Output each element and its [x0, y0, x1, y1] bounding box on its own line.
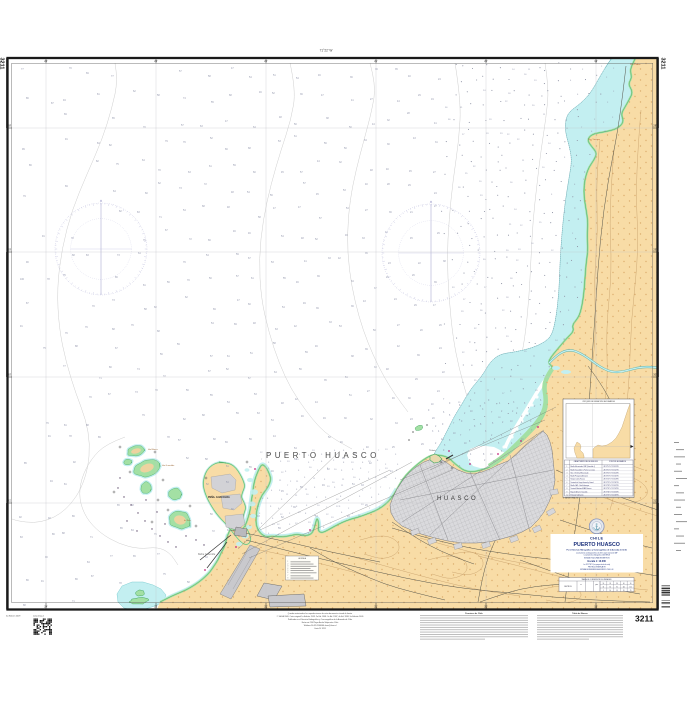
svg-text:Terminal de Carga General y Gr: Terminal de Carga General y Granel — [571, 482, 595, 484]
svg-text:100: 100 — [20, 278, 25, 281]
svg-text:LEYENDA: LEYENDA — [298, 557, 307, 560]
svg-text:24': 24' — [44, 605, 48, 609]
svg-text:pies: pies — [595, 584, 598, 586]
svg-text:Tabla de Mareas: Tabla de Mareas — [572, 613, 588, 615]
svg-text:Derrotero de Chile: Derrotero de Chile — [465, 612, 483, 615]
svg-text:3211: 3211 — [635, 614, 654, 624]
svg-text:5a Edición 2009: 5a Edición 2009 — [6, 616, 21, 618]
svg-text:28°27'19"S 71°11'26"W: 28°27'19"S 71°11'26"W — [604, 476, 620, 478]
svg-text:28°27'10"S 71°10'20"W: 28°27'10"S 71°10'20"W — [604, 466, 620, 468]
svg-text:PUERTO HUASCO: PUERTO HUASCO — [266, 451, 380, 460]
svg-text:28°27'16"S 71°10'24"W: 28°27'16"S 71°10'24"W — [604, 472, 620, 474]
svg-text:Escala 1: 10.000: Escala 1: 10.000 — [588, 560, 607, 563]
svg-text:32: 32 — [603, 586, 605, 588]
svg-text:Pta. Lobos: Pta. Lobos — [630, 63, 641, 66]
svg-text:24': 24' — [44, 59, 48, 63]
svg-text:Caleta: Caleta — [430, 449, 437, 452]
svg-text:Carta N° 3211: Carta N° 3211 — [314, 627, 326, 630]
svg-text:Muelle Mecanizado CMP (Guacold: Muelle Mecanizado CMP (Guacolda I) — [571, 466, 596, 468]
svg-text:Pta. Vinagre: Pta. Vinagre — [588, 138, 601, 141]
svg-text:⚓: ⚓ — [593, 523, 601, 531]
svg-text:30': 30' — [8, 373, 12, 377]
svg-text:22': 22' — [264, 59, 268, 63]
svg-text:20': 20' — [484, 605, 488, 609]
svg-text:19': 19' — [594, 59, 598, 63]
svg-text:HUASCO: HUASCO — [437, 496, 478, 502]
svg-text:21': 21' — [374, 605, 378, 609]
svg-text:Publicada en el Servicio Hidro: Publicada en el Servicio Hidrográfico y … — [288, 618, 352, 621]
svg-text:Emisario Submarino: Emisario Submarino — [571, 494, 584, 496]
svg-text:10: 10 — [603, 583, 605, 585]
svg-text:152: 152 — [630, 586, 632, 588]
svg-text:28°27'31"S 71°11'34"W: 28°27'31"S 71°11'34"W — [604, 488, 620, 490]
svg-text:10: 10 — [567, 494, 569, 496]
svg-text:28°27'28"S 71°10'32"W: 28°27'28"S 71°10'32"W — [604, 485, 620, 487]
svg-text:28°27'25"S 71°11'30"W: 28°27'25"S 71°11'30"W — [604, 482, 620, 484]
svg-text:Quedan autorizadas las reprodu: Quedan autorizadas las reproducciones de… — [288, 612, 352, 615]
svg-text:28°27'22"S 71°10'28"W: 28°27'22"S 71°10'28"W — [604, 479, 620, 481]
svg-text:www.shoa.cl: www.shoa.cl — [33, 616, 45, 618]
svg-text:Errázuriz 254 Playa Ancha Valp: Errázuriz 254 Playa Ancha Valparaíso Chi… — [302, 621, 339, 624]
svg-text:28': 28' — [8, 124, 12, 128]
svg-text:28°27'13"S 71°11'22"W: 28°27'13"S 71°11'22"W — [604, 469, 620, 471]
svg-text:31': 31' — [653, 499, 657, 503]
svg-text:22': 22' — [264, 605, 268, 609]
svg-text:71°22' W: 71°22' W — [320, 49, 333, 53]
svg-text:Isla Blanca: Isla Blanca — [148, 449, 159, 451]
svg-text:30': 30' — [653, 373, 657, 377]
svg-text:Teléfono 56-32-2266666 shoa@sh: Teléfono 56-32-2266666 shoa@shoa.cl — [303, 625, 337, 627]
svg-text:Bahía Guacolda: Bahía Guacolda — [198, 553, 216, 556]
svg-text:21': 21' — [374, 59, 378, 63]
svg-text:PUERTO HUASCO: PUERTO HUASCO — [573, 542, 619, 548]
svg-text:METROS: METROS — [564, 586, 572, 588]
svg-text:CROQUIS DE UBICACION GEOGRAFIC: CROQUIS DE UBICACION GEOGRAFICA — [582, 400, 615, 403]
svg-text:23': 23' — [154, 59, 158, 63]
svg-text:3211: 3211 — [0, 58, 5, 70]
svg-text:Ia. Rica: Ia. Rica — [184, 520, 192, 522]
svg-text:62: 62 — [609, 586, 611, 588]
svg-text:31': 31' — [8, 499, 12, 503]
svg-text:29': 29' — [8, 248, 12, 252]
svg-text:3211: 3211 — [659, 58, 665, 70]
svg-text:28°27'37"S 71°11'38"W: 28°27'37"S 71°11'38"W — [604, 494, 620, 496]
svg-text:28°27'34"S 71°10'36"W: 28°27'34"S 71°10'36"W — [604, 491, 620, 493]
svg-text:23': 23' — [154, 605, 158, 609]
svg-text:CHILE: CHILE — [590, 536, 603, 540]
svg-text:© SHOA 2009. Carta original 1a: © SHOA 2009. Carta original 1a Edición 1… — [277, 615, 364, 618]
svg-text:10: 10 — [609, 590, 611, 592]
svg-text:29': 29' — [653, 248, 657, 252]
svg-text:Por el Servicio Hidrográfico y: Por el Servicio Hidrográfico y Oceanográ… — [566, 548, 626, 551]
svg-text:19': 19' — [594, 605, 598, 609]
svg-text:Isla Guacolda: Isla Guacolda — [162, 465, 175, 467]
svg-text:20: 20 — [609, 583, 611, 585]
svg-text:PEÑA. GUACOLDA: PEÑA. GUACOLDA — [208, 496, 230, 499]
svg-text:28': 28' — [653, 124, 657, 128]
svg-text:122: 122 — [623, 586, 625, 588]
svg-text:20': 20' — [484, 59, 488, 63]
